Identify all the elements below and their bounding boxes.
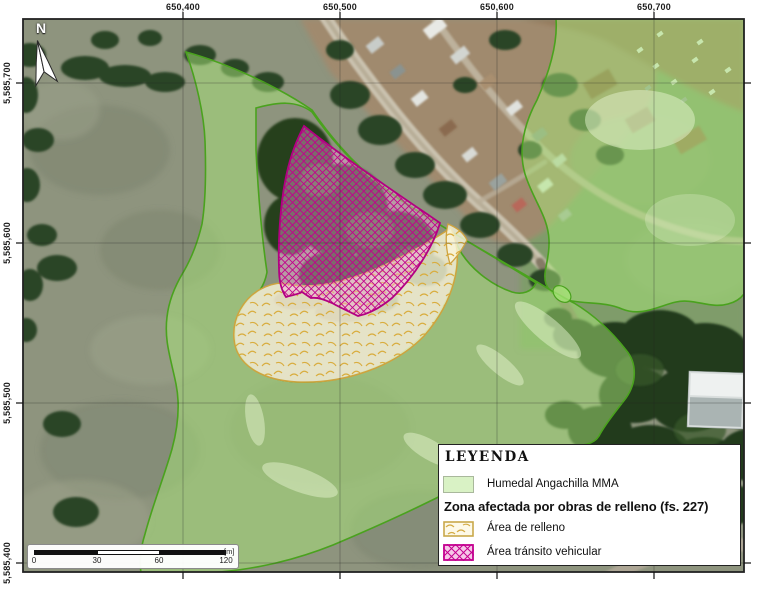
scale-bar-segment [34, 550, 97, 555]
scale-tick-label: 60 [144, 556, 174, 565]
scale-tick-label: 30 [82, 556, 112, 565]
scale-unit-label: [m] [224, 547, 234, 556]
scale-bar-segments [34, 550, 226, 555]
x-axis-label: 650,700 [619, 2, 689, 12]
x-axis-label: 650,600 [462, 2, 532, 12]
legend-item-transito: Área tránsito vehicular [487, 546, 601, 558]
scale-tick-label: 120 [211, 556, 241, 565]
legend-subtitle: Zona afectada por obras de relleno (fs. … [444, 499, 708, 514]
scale-tick-label: 0 [19, 556, 49, 565]
fill-area-swatch-icon [443, 521, 474, 537]
map-figure: 650,400 650,500 650,600 650,700 5,585,70… [0, 0, 768, 592]
y-axis-label: 5,585,700 [2, 48, 14, 118]
scale-bar-segment [97, 550, 161, 555]
scale-bar: 0 30 60 120 [m] [27, 544, 239, 569]
x-axis-label: 650,500 [305, 2, 375, 12]
legend: LEYENDA Humedal Angachilla MMA Zona afec… [438, 444, 741, 566]
wetland-polygon-east [522, 19, 744, 312]
y-axis-label: 5,585,500 [2, 368, 14, 438]
legend-title: LEYENDA [445, 449, 530, 465]
north-arrow-label: N [24, 20, 58, 36]
y-axis-label: 5,585,600 [2, 208, 14, 278]
transit-area-swatch-icon [443, 544, 474, 561]
legend-item-relleno: Área de relleno [487, 522, 565, 534]
scale-bar-segment [159, 550, 226, 555]
y-axis-label: 5,585,400 [2, 528, 14, 592]
legend-item-wetland: Humedal Angachilla MMA [487, 478, 619, 490]
wetland-swatch-icon [443, 476, 474, 493]
x-axis-label: 650,400 [148, 2, 218, 12]
